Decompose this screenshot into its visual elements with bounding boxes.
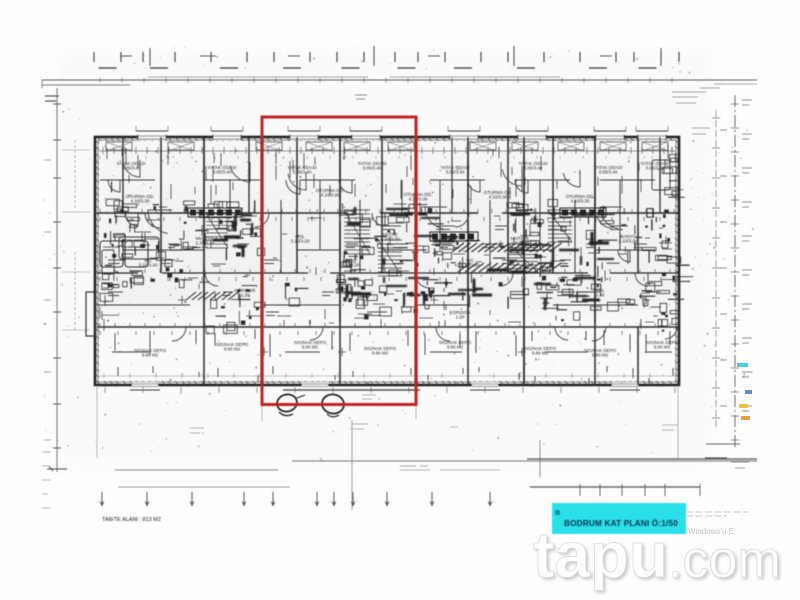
svg-text:TAB/TE ALANI : 813 M2: TAB/TE ALANI : 813 M2 xyxy=(102,517,161,523)
